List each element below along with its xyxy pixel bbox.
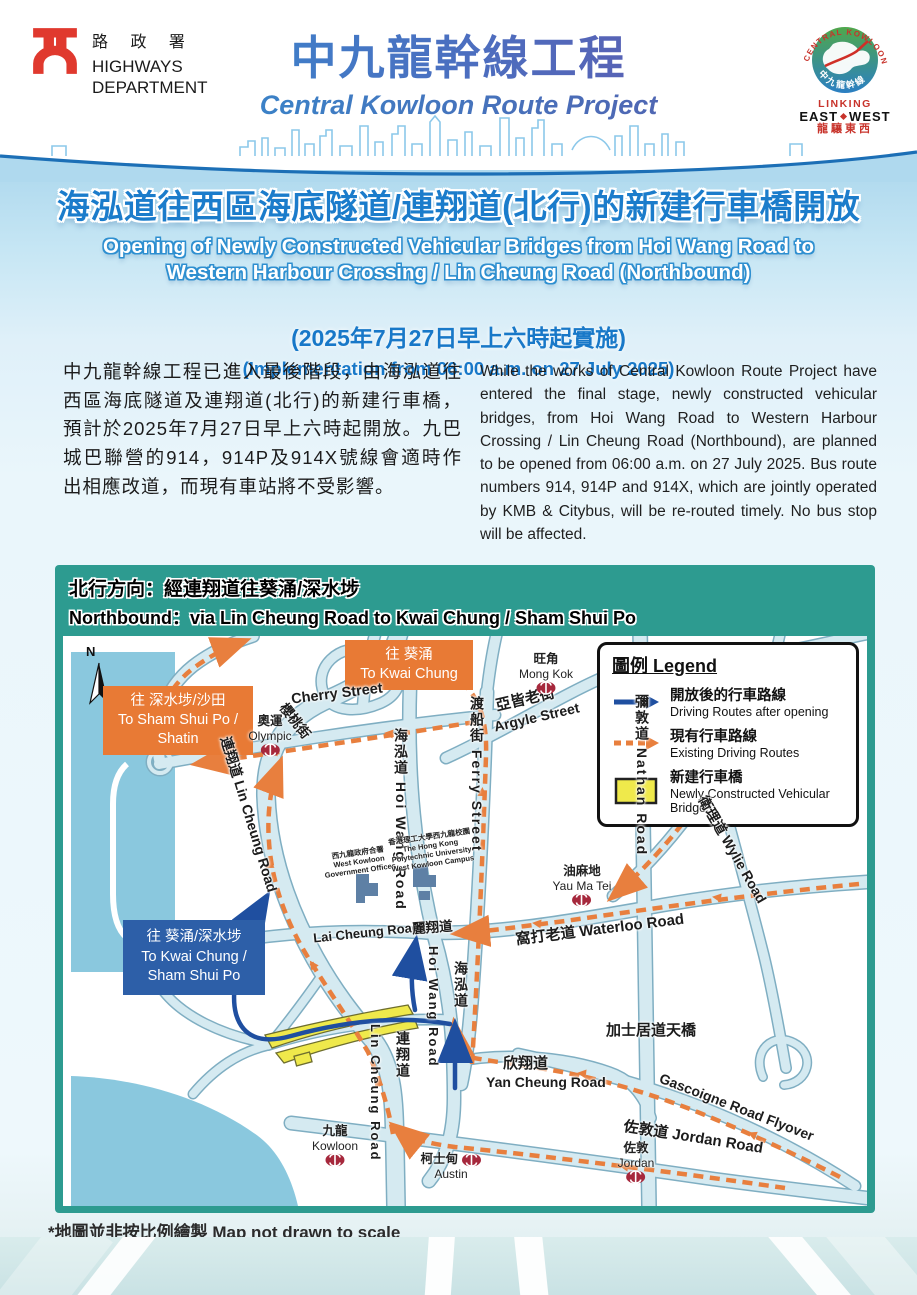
body-paragraph-cn: 中九龍幹線工程已進入最後階段，由海泓道往西區海底隧道及連翔道(北行)的新建行車橋… [63,358,462,501]
road-stripe [513,1237,554,1295]
map-direction-cn: 北行方向：經連翔道往葵涌/深水埗 [69,574,861,601]
station-yau-ma-tei: 油麻地 Yau Ma Tei [553,864,612,913]
notice-title-en: Opening of Newly Constructed Vehicular B… [0,234,917,285]
direction-box-shatin-l2: To Sham Shui Po / [107,711,249,730]
notice-title-cn: 海泓道往西區海底隧道/連翔道(北行)的新建行車橋開放 [0,180,917,228]
station-olympic: 奧運 Olympic [248,714,291,763]
implementation-date-cn: (2025年7月27日早上六時起實施) [0,319,917,353]
station-austin-cn: 柯士甸 [421,1152,482,1167]
label-lin-cheung-road-bot-en: Lin Cheung Road [368,1024,383,1176]
mtr-icon [626,1170,646,1184]
station-austin-cn-text: 柯士甸 [421,1152,459,1166]
direction-box-kwai-l2: To Kwai Chung [349,665,469,684]
mtr-icon [572,893,592,907]
label-yan-cheung-road-en: Yan Cheung Road [486,1074,606,1090]
map-direction-en: Northbound：via Lin Cheung Road to Kwai C… [69,604,861,630]
skyline-graphic [0,110,917,182]
legend-existing-cn: 現有行車路線 [670,725,799,746]
mtr-icon [325,1153,345,1167]
ckr-badge-emblem: CENTRAL KOWLOON ROUTE 中九龍幹線 [795,12,895,98]
road-stripe [420,1237,455,1295]
station-mong-kok-en: Mong Kok [519,667,573,681]
poster: 路 政 署 HIGHWAYS DEPARTMENT 中九龍幹線工程 Centra… [0,0,917,1295]
map-panel: 北行方向：經連翔道往葵涌/深水埗 Northbound：via Lin Cheu… [55,565,875,1213]
station-kowloon-cn: 九龍 [312,1124,358,1139]
legend-bridge-cn: 新建行車橋 [670,766,844,787]
notice-title-block: 海泓道往西區海底隧道/連翔道(北行)的新建行車橋開放 Opening of Ne… [0,180,917,380]
station-olympic-en: Olympic [248,729,291,743]
top-header: 路 政 署 HIGHWAYS DEPARTMENT 中九龍幹線工程 Centra… [0,0,917,170]
direction-box-blue-l3: Sham Shui Po [127,967,261,987]
station-mong-kok-cn: 旺角 [519,652,573,667]
label-hoi-wang-road-mid-en: Hoi Wang Road [426,946,441,1074]
swoosh-fill [0,152,917,182]
station-jordan-en: Jordan [618,1156,655,1170]
direction-box-kwai-ssp: 往 葵涌/深水埗 To Kwai Chung / Sham Shui Po [123,920,265,995]
legend-existing-en: Existing Driving Routes [670,746,799,760]
station-jordan: 佐敦 Jordan [618,1141,655,1190]
label-yan-cheung-road-cn: 欣翔道 [503,1052,548,1073]
project-title: 中九龍幹線工程 Central Kowloon Route Project [0,22,917,121]
label-lin-cheung-road-bot-cn: 連翔道 [393,1031,413,1109]
station-olympic-cn: 奧運 [248,714,291,729]
label-nathan-road: 彌敦道 Nathan Road [632,694,652,909]
skyline-buildings [52,116,802,156]
station-kowloon: 九龍 Kowloon [312,1124,358,1173]
station-kowloon-en: Kowloon [312,1139,358,1153]
legend-new-en: Driving Routes after opening [670,705,828,719]
station-austin-en: Austin [421,1167,482,1181]
label-hoi-wang-road-mid-cn: 海泓道 [451,961,471,1036]
station-jordan-cn: 佐敦 [618,1141,655,1156]
bottom-road-graphic [0,1237,917,1295]
station-austin: 柯士甸 Austin [421,1152,482,1181]
direction-box-blue-l1: 往 葵涌/深水埗 [127,928,261,948]
direction-box-kwai-l1: 往 葵涌 [349,646,469,665]
label-ferry-street: 渡船街 Ferry Street [467,696,487,926]
direction-box-blue-l2: To Kwai Chung / [127,948,261,968]
notice-title-en-line2: Western Harbour Crossing / Lin Cheung Ro… [0,260,917,286]
direction-box-shatin-l1: 往 深水埗/沙田 [107,692,249,711]
legend-title: 圖例 Legend [612,652,844,678]
label-gascoigne-flyover-cn: 加士居道天橋 [606,1019,696,1040]
legend-new-cn: 開放後的行車路線 [670,684,828,705]
map-canvas: N 往 深水埗/沙田 To Sham Shui Po / Shatin 往 葵涌… [63,636,867,1206]
mtr-icon [462,1153,482,1167]
project-title-cn: 中九龍幹線工程 [0,22,917,88]
station-yau-ma-tei-en: Yau Ma Tei [553,879,612,893]
north-label: N [77,644,121,659]
map-direction-bar: 北行方向：經連翔道往葵涌/深水埗 Northbound：via Lin Cheu… [55,565,875,636]
notice-title-en-line1: Opening of Newly Constructed Vehicular B… [0,234,917,260]
mtr-icon [260,743,280,757]
station-mong-kok: 旺角 Mong Kok [519,652,573,701]
skyline-peak [572,137,610,151]
body-paragraph-en: While the works of Central Kowloon Route… [480,360,877,546]
mtr-icon [536,681,556,695]
label-lai-cheung-road-cn: 麗翔道 [411,915,453,938]
station-yau-ma-tei-cn: 油麻地 [553,864,612,879]
